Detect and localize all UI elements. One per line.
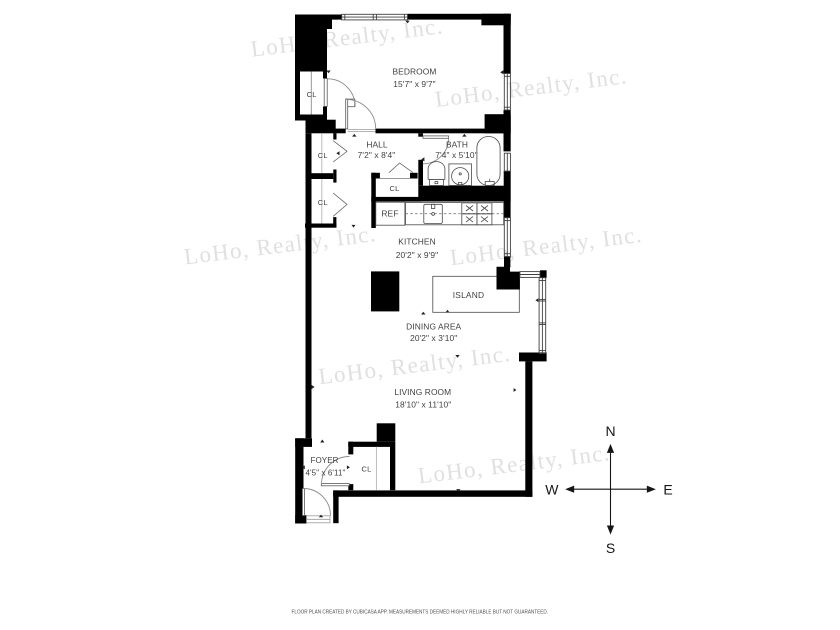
svg-text:CL: CL — [307, 90, 317, 99]
svg-text:N: N — [605, 423, 615, 439]
svg-text:FLOOR PLAN CREATED BY CUBICASA: FLOOR PLAN CREATED BY CUBICASA APP. MEAS… — [292, 609, 549, 615]
svg-text:CL: CL — [390, 184, 400, 193]
svg-text:S: S — [606, 540, 615, 556]
svg-text:7'2" x 8'4": 7'2" x 8'4" — [358, 150, 396, 160]
svg-text:W: W — [545, 482, 559, 498]
svg-text:KITCHEN: KITCHEN — [398, 236, 435, 246]
svg-text:ISLAND: ISLAND — [453, 290, 484, 300]
svg-text:HALL: HALL — [366, 140, 388, 150]
svg-text:CL: CL — [362, 464, 372, 473]
svg-text:CL: CL — [318, 151, 328, 160]
svg-text:FOYER: FOYER — [310, 456, 338, 465]
svg-text:E: E — [663, 482, 672, 498]
svg-text:REF: REF — [381, 209, 398, 219]
svg-text:7'4" x 5'10": 7'4" x 5'10" — [435, 150, 477, 160]
svg-text:18'10" x 11'10": 18'10" x 11'10" — [395, 399, 451, 409]
svg-text:20'2" x 9'9": 20'2" x 9'9" — [396, 250, 438, 260]
svg-text:DINING AREA: DINING AREA — [406, 321, 461, 331]
svg-text:4'5" x 6'11": 4'5" x 6'11" — [305, 468, 345, 477]
svg-text:LIVING ROOM: LIVING ROOM — [394, 387, 451, 397]
svg-text:20'2" x 3'10": 20'2" x 3'10" — [410, 333, 457, 343]
svg-text:15'7" x 9'7": 15'7" x 9'7" — [393, 79, 435, 89]
svg-text:BATH: BATH — [446, 140, 468, 150]
svg-text:BEDROOM: BEDROOM — [393, 67, 437, 77]
svg-text:CL: CL — [318, 198, 328, 207]
